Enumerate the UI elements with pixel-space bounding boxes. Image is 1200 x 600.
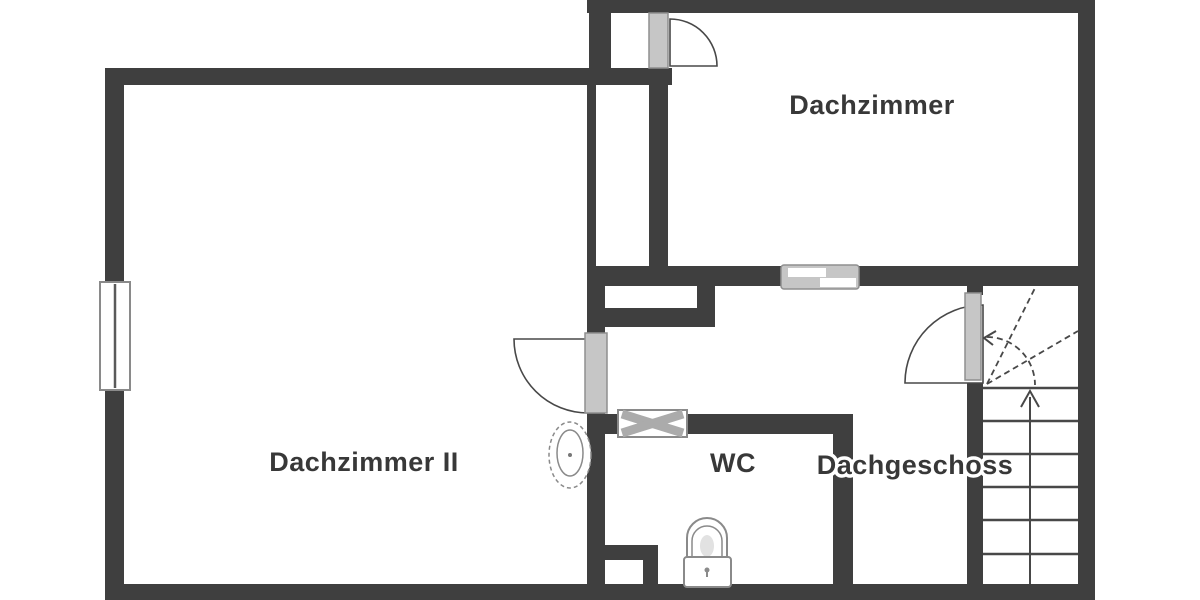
floor-plan-page: Dachzimmer Dachzimmer II WC Dachgeschoss bbox=[0, 0, 1200, 600]
wall-wc-top-east bbox=[687, 414, 853, 434]
wall-right bbox=[1078, 0, 1095, 600]
hatch-window bbox=[618, 410, 687, 437]
door-stairs bbox=[905, 293, 983, 383]
wall-left-upper bbox=[105, 68, 124, 284]
wall-wc-top-west bbox=[605, 414, 618, 434]
door-dachzimmer2 bbox=[514, 333, 607, 413]
wall-wc-chase-v bbox=[643, 560, 658, 584]
door-leaf bbox=[965, 293, 981, 380]
wall-dachzimmer2-right-lower bbox=[587, 411, 605, 584]
room-label-dachzimmer-ii: Dachzimmer II bbox=[269, 447, 459, 477]
door-leaf bbox=[649, 13, 668, 68]
stair-winder-tread-1 bbox=[987, 288, 1035, 384]
wall-wc-right bbox=[833, 414, 853, 584]
wall-hall-top-west bbox=[587, 266, 781, 286]
wall-dachzimmer-left bbox=[649, 85, 668, 266]
wall-shaft-bottom bbox=[587, 308, 715, 327]
wall-wc-chase-h bbox=[605, 545, 658, 560]
wall-top bbox=[587, 0, 1095, 13]
door-swing-arc bbox=[670, 19, 717, 66]
wall-bottom bbox=[105, 584, 1095, 600]
toilet-bowl-water bbox=[700, 535, 714, 557]
staircase bbox=[983, 288, 1078, 584]
toilet-icon bbox=[684, 518, 731, 587]
sliding-door bbox=[781, 265, 859, 289]
sliding-door-panel bbox=[788, 268, 826, 277]
wall-shaft-right bbox=[697, 286, 715, 308]
sink-drain bbox=[568, 453, 572, 457]
wall-dachzimmer2-top bbox=[105, 68, 672, 85]
toilet-flush-button bbox=[705, 568, 710, 573]
sliding-door-panel bbox=[820, 278, 856, 287]
room-label-wc: WC bbox=[710, 448, 756, 478]
room-label-dachzimmer: Dachzimmer bbox=[789, 90, 955, 120]
stair-arrow-left-icon bbox=[984, 331, 996, 345]
door-leaf bbox=[585, 333, 607, 413]
window bbox=[100, 282, 130, 390]
door-swing-arc bbox=[514, 339, 588, 413]
wall-stair-left bbox=[967, 378, 983, 584]
wall-shaft-left bbox=[587, 286, 605, 308]
wall-upper-block-left bbox=[589, 0, 611, 85]
floor-plan: Dachzimmer Dachzimmer II WC Dachgeschoss bbox=[0, 0, 1200, 600]
door-dachzimmer bbox=[649, 13, 717, 68]
wall-hall-top-east bbox=[858, 266, 1095, 286]
wall-corridor-left-thin bbox=[587, 85, 596, 266]
room-label-dachgeschoss: Dachgeschoss bbox=[817, 450, 1014, 480]
wall-left-lower bbox=[105, 388, 124, 584]
sink-icon bbox=[549, 422, 591, 488]
stair-winder-arc bbox=[987, 337, 1035, 385]
